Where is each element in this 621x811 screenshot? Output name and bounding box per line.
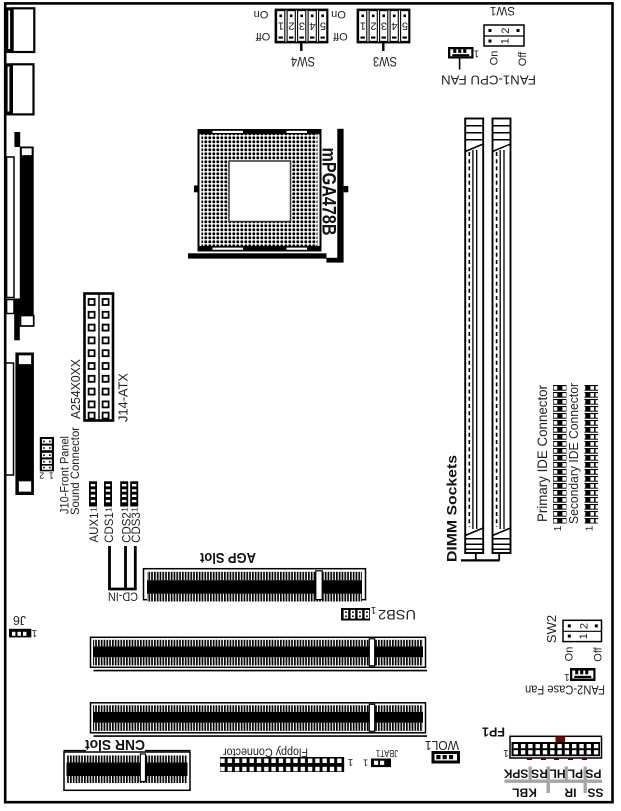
svg-text:FAN1-CPU FAN: FAN1-CPU FAN	[441, 72, 536, 87]
svg-text:1: 1	[503, 747, 509, 758]
svg-text:Off: Off	[332, 30, 347, 42]
svg-text:FP1: FP1	[482, 725, 505, 739]
svg-text:1: 1	[278, 20, 284, 32]
svg-text:SW2: SW2	[544, 615, 559, 643]
svg-text:Floppy Connector: Floppy Connector	[223, 745, 308, 757]
svg-text:1: 1	[585, 525, 596, 531]
svg-text:1: 1	[360, 20, 366, 32]
svg-text:1: 1	[564, 671, 570, 682]
svg-text:Secondary IDE Connector: Secondary IDE Connector	[566, 382, 581, 524]
svg-text:CNR Slot: CNR Slot	[85, 736, 145, 752]
svg-text:2: 2	[288, 20, 294, 32]
svg-text:1: 1	[370, 604, 376, 615]
svg-text:1: 1	[129, 507, 139, 512]
svg-text:J14-ATX: J14-ATX	[116, 372, 130, 422]
svg-text:4: 4	[309, 20, 315, 32]
svg-text:2: 2	[370, 20, 376, 32]
svg-text:Off: Off	[517, 51, 529, 66]
svg-text:Sound Connector: Sound Connector	[68, 427, 82, 515]
svg-text:J6: J6	[13, 613, 26, 627]
svg-text:1: 1	[31, 627, 37, 638]
svg-text:5: 5	[320, 20, 326, 32]
svg-text:1: 1	[49, 470, 54, 480]
svg-text:FAN2-Case Fan: FAN2-Case Fan	[525, 683, 605, 697]
svg-text:1: 1	[88, 507, 98, 512]
svg-text:SS: SS	[587, 786, 603, 800]
svg-text:mPGA478B: mPGA478B	[317, 148, 338, 236]
svg-text:PS: PS	[585, 767, 601, 781]
svg-text:On: On	[254, 8, 269, 20]
svg-text:JBAT1: JBAT1	[376, 747, 398, 759]
svg-text:4: 4	[391, 20, 397, 32]
svg-text:1: 1	[119, 507, 129, 512]
svg-text:WOL1: WOL1	[425, 738, 459, 752]
svg-text:1: 1	[553, 525, 564, 531]
svg-text:SPK: SPK	[503, 767, 528, 781]
svg-text:1: 1	[578, 633, 590, 639]
svg-text:HL: HL	[550, 767, 566, 781]
svg-text:KBL: KBL	[512, 786, 537, 800]
svg-text:5: 5	[402, 20, 408, 32]
svg-text:2: 2	[39, 470, 44, 480]
svg-text:SW3: SW3	[373, 54, 397, 69]
svg-text:Off: Off	[255, 30, 270, 42]
svg-text:On: On	[331, 8, 346, 20]
svg-text:1: 1	[363, 757, 368, 768]
svg-text:CDS3: CDS3	[131, 512, 143, 543]
svg-text:2: 2	[578, 623, 590, 629]
svg-text:On: On	[563, 647, 575, 662]
svg-text:A254X0XX: A254X0XX	[69, 358, 83, 419]
svg-text:3: 3	[381, 20, 387, 32]
svg-text:CD-IN: CD-IN	[108, 589, 138, 603]
svg-text:Off: Off	[592, 646, 604, 661]
svg-text:USB2: USB2	[378, 607, 416, 622]
svg-text:CDS1: CDS1	[104, 512, 116, 543]
svg-text:PL: PL	[568, 767, 583, 781]
svg-text:DIMM Sockets: DIMM Sockets	[443, 455, 459, 562]
svg-text:2: 2	[500, 28, 512, 34]
svg-text:AUX1: AUX1	[89, 512, 101, 542]
svg-text:SW4: SW4	[291, 54, 315, 69]
svg-text:AGP Slot: AGP Slot	[200, 549, 256, 565]
svg-text:IR: IR	[564, 786, 576, 800]
svg-text:1: 1	[473, 48, 479, 59]
svg-text:SW1: SW1	[490, 4, 515, 16]
svg-text:1: 1	[499, 38, 511, 44]
svg-text:1: 1	[347, 756, 353, 767]
svg-text:RS: RS	[531, 767, 548, 781]
svg-text:3: 3	[299, 20, 305, 32]
svg-text:On: On	[488, 51, 500, 66]
svg-text:Primary IDE Connector: Primary IDE Connector	[535, 385, 550, 522]
svg-text:1: 1	[103, 507, 113, 512]
